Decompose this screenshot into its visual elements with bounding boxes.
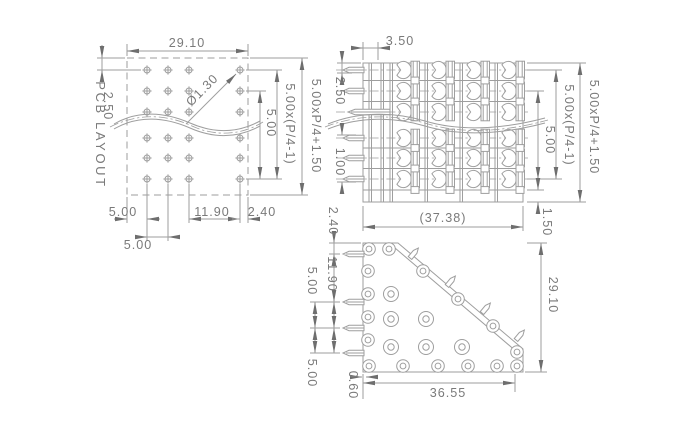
screw-tab-icon <box>446 187 454 194</box>
screw-tab-icon <box>516 77 524 84</box>
wire-clamp-icon <box>502 170 525 188</box>
drill-hole-icon <box>163 65 172 74</box>
drill-hole-icon <box>163 153 172 162</box>
screw-tab-icon <box>481 145 489 152</box>
wire-clamp-icon <box>502 82 525 100</box>
screw-tab-icon <box>411 145 419 152</box>
dim-top-pin-pitch-b: 5.00 <box>305 328 340 387</box>
dim-label: 5.00x(P/4-1) <box>562 84 576 165</box>
dim-label: 29.10 <box>546 277 560 314</box>
drill-hole-icon <box>142 86 151 95</box>
drill-hole-icon <box>184 133 193 142</box>
screw-head-icon <box>419 340 434 355</box>
solder-pin-icon <box>343 325 364 330</box>
screw-tab-icon <box>411 77 419 84</box>
dim-label: 2.50 <box>333 77 347 106</box>
edge-hole-icon <box>462 360 475 373</box>
screw-tab-icon <box>481 165 489 172</box>
dim-label: 0.60 <box>346 371 360 400</box>
drill-hole-icon <box>163 86 172 95</box>
dim-pcb-width: 29.10 <box>127 36 248 56</box>
dim-label: 5.00 <box>305 267 319 296</box>
drill-hole-icon <box>184 174 193 183</box>
dim-front-row-pitch: 5.00 <box>527 91 562 179</box>
dim-front-row-span: 5.00x(P/4-1) <box>527 70 576 179</box>
dim-top-body-width: 36.55 <box>363 374 515 400</box>
solder-pin-icon <box>343 176 364 181</box>
edge-hole-icon <box>452 293 465 306</box>
wire-clamp-icon <box>467 103 490 121</box>
drill-hole-icon <box>184 153 193 162</box>
pcb-break-line <box>110 114 263 136</box>
dim-label: 11.90 <box>325 256 339 292</box>
screw-tab-icon <box>411 98 419 105</box>
solder-pin-icon <box>343 299 364 304</box>
edge-hole-icon <box>362 265 375 278</box>
drill-hole-icon <box>163 133 172 142</box>
screw-tab-icon <box>446 77 454 84</box>
drill-hole-icon <box>235 86 244 95</box>
wire-clamp-icon <box>502 61 525 79</box>
solder-pin-icon <box>343 135 364 140</box>
solder-pin-icon <box>514 329 526 342</box>
screw-tab-icon <box>481 98 489 105</box>
drill-hole-icon <box>142 107 151 116</box>
wire-clamp-icon <box>397 61 420 79</box>
edge-hole-icon <box>417 265 430 278</box>
screw-tab-icon <box>516 145 524 152</box>
dim-label: 5.00 <box>264 109 278 138</box>
edge-hole-icon <box>491 360 504 373</box>
edge-hole-icon <box>487 320 500 333</box>
drill-hole-icon <box>142 174 151 183</box>
dim-front-bottom-margin: 1.50 <box>527 181 554 236</box>
front-view: 3.50 2.50 1.00 5.00 5.00x(P/4-1) <box>325 34 601 236</box>
wire-clamp-icon <box>502 103 525 121</box>
solder-pin-icon <box>343 67 364 72</box>
dim-label: 11.90 <box>194 205 230 219</box>
drill-hole-icon <box>142 65 151 74</box>
dim-front-overall-width: (37.38) <box>363 206 523 231</box>
edge-hole-icon <box>362 311 375 324</box>
dim-pcb-bottom: 5.00 11.90 2.40 5.00 <box>109 184 277 252</box>
wire-clamp-icon <box>432 170 455 188</box>
wire-clamp-icon <box>467 61 490 79</box>
edge-hole-icon <box>397 360 410 373</box>
solder-pin-icon <box>343 251 364 256</box>
dim-label: 2.40 <box>326 207 340 236</box>
front-left-wall <box>369 63 384 202</box>
top-view: 2.40 11.90 5.00 5.00 0.60 36. <box>305 207 560 400</box>
dim-label: 29.10 <box>169 36 206 50</box>
dim-label: 1.50 <box>540 208 554 237</box>
dim-front-top-to-pin: 2.50 <box>333 51 361 105</box>
dim-label: 1.00 <box>333 148 347 177</box>
screw-head-icon <box>419 312 434 327</box>
dim-top-body-depth: 29.10 <box>525 243 560 372</box>
dim-label: 36.55 <box>430 386 467 400</box>
screw-tab-icon <box>516 165 524 172</box>
screw-tab-icon <box>481 187 489 194</box>
pcb-layout-view: PCB LAYOUT 29.10 2.50 <box>93 36 323 252</box>
dim-label: 2.50 <box>101 92 115 121</box>
wire-clamp-icon <box>397 82 420 100</box>
drill-hole-icon <box>235 174 244 183</box>
dim-label: (37.38) <box>420 211 467 225</box>
drill-hole-icon <box>235 65 244 74</box>
drill-hole-icon <box>142 153 151 162</box>
dim-label: 5.00xP/4+1.50 <box>587 80 601 175</box>
dim-label: 5.00 <box>305 359 319 388</box>
dim-label: 5.00 <box>543 126 557 155</box>
dim-label: 5.00x(P/4-1) <box>283 83 297 164</box>
dim-label: 5.00 <box>109 205 138 219</box>
drill-hole-icon <box>235 153 244 162</box>
screw-head-icon <box>384 340 399 355</box>
wire-clamp-icon <box>397 170 420 188</box>
screw-head-icon <box>455 340 470 355</box>
edge-hole-icon <box>362 334 375 347</box>
edge-hole-icon <box>362 288 375 301</box>
edge-hole-icon <box>511 360 524 373</box>
front-solder-pins <box>343 67 390 181</box>
screw-tab-icon <box>516 187 524 194</box>
technical-drawing-canvas: PCB LAYOUT 29.10 2.50 <box>0 0 680 440</box>
screw-tab-icon <box>411 165 419 172</box>
dim-pcb-hole-dia: Ø1.30 <box>183 71 236 124</box>
screw-tab-icon <box>446 98 454 105</box>
wire-clamp-icon <box>432 61 455 79</box>
edge-hole-icon <box>383 243 396 256</box>
dim-label: 2.40 <box>248 205 277 219</box>
screw-tab-icon <box>446 165 454 172</box>
wire-clamp-icon <box>432 82 455 100</box>
screw-head-icon <box>384 312 399 327</box>
screw-tab-icon <box>481 77 489 84</box>
solder-pin-icon <box>343 350 364 355</box>
drill-hole-icon <box>163 174 172 183</box>
screw-tab-icon <box>411 187 419 194</box>
edge-hole-icon <box>432 360 445 373</box>
dim-label: 5.00xP/4+1.50 <box>309 79 323 174</box>
edge-hole-icon <box>363 243 376 256</box>
solder-pin-icon <box>445 275 457 288</box>
drawing-svg: PCB LAYOUT 29.10 2.50 <box>0 0 680 440</box>
dim-label: 3.50 <box>386 34 415 48</box>
edge-hole-icon <box>363 360 376 373</box>
wire-clamp-icon <box>467 82 490 100</box>
screw-tab-icon <box>516 98 524 105</box>
wire-clamp-icon <box>467 170 490 188</box>
screw-tab-icon <box>446 145 454 152</box>
drill-hole-icon <box>235 107 244 116</box>
drill-hole-icon <box>184 65 193 74</box>
drill-hole-icon <box>142 133 151 142</box>
dim-front-wall: 3.50 <box>351 34 414 60</box>
solder-pin-icon <box>480 302 492 315</box>
dim-label: 5.00 <box>124 238 153 252</box>
wire-clamp-icon <box>432 103 455 121</box>
edge-hole-icon <box>511 346 524 359</box>
screw-head-icon <box>384 287 399 302</box>
dim-top-corner-offset: 0.60 <box>346 371 377 400</box>
